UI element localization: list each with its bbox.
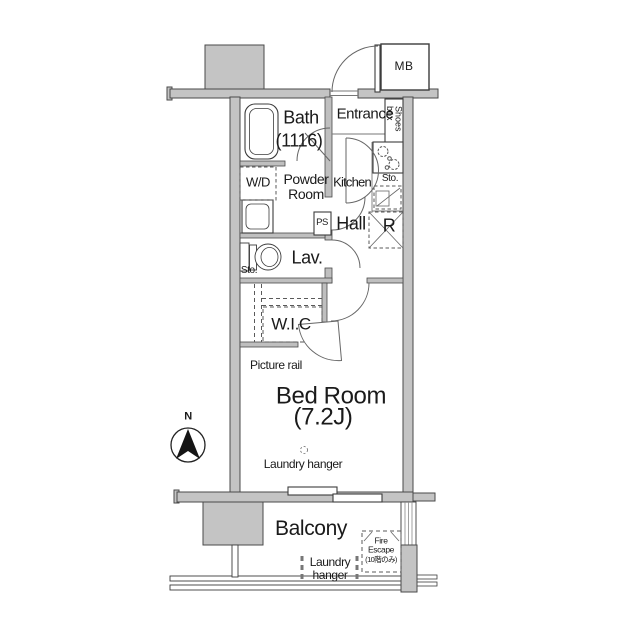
floor-plan: MB Bath (1116) Entrance Shoes box W/D Po… — [0, 0, 640, 640]
lavatory-storage-label: Sto. — [241, 266, 257, 276]
front-door-leaf — [375, 45, 380, 92]
lavatory-door-arc — [332, 240, 360, 268]
compass-north-label: N — [184, 411, 192, 422]
powder-room-label: Powder Room — [273, 172, 339, 202]
shoes-box-label: Shoes box — [386, 106, 403, 140]
balcony-divider — [232, 545, 238, 577]
wall-powder-lav — [240, 233, 325, 238]
railing-stub — [417, 575, 437, 579]
fire-escape-label-line2: Escape — [368, 546, 394, 555]
balcony-railing-outer — [170, 576, 403, 581]
bath-label: Bath — [283, 109, 318, 128]
bathtub-inner — [250, 109, 274, 155]
bedroom-door-arc — [331, 283, 369, 321]
wall-right — [403, 97, 413, 495]
meter-box-label: MB — [395, 60, 414, 72]
wall-wic-bottom — [240, 342, 298, 347]
picture-rail-label: Picture rail — [250, 359, 302, 371]
wall-top-bar-left — [170, 89, 330, 98]
floor-plan-drawing — [0, 0, 640, 640]
wall-bath-powder — [240, 161, 285, 166]
refrigerator-label: R — [383, 217, 396, 236]
washer-dryer-label: W/D — [246, 175, 270, 188]
window-panel-right — [333, 494, 382, 502]
window-panel-left — [288, 487, 337, 495]
balcony-right-column — [401, 545, 417, 592]
hall-label: Hall — [336, 215, 365, 234]
kitchen-storage-label: Sto. — [382, 174, 398, 184]
north-arrow-icon — [176, 429, 200, 459]
wall-top-left-column — [205, 45, 264, 91]
toilet-bowl-inner — [261, 248, 278, 267]
wall-hall-bedroom — [367, 278, 403, 283]
fire-escape-label-line3: (10階のみ) — [365, 556, 397, 564]
balcony-laundry-hanger-label: Laundry hanger — [295, 556, 365, 582]
kitchen-label: Kitchen — [333, 175, 371, 188]
fire-escape-hatch-mark — [364, 532, 372, 541]
lavatory-label: Lav. — [291, 249, 322, 268]
wall-lav-wic — [240, 278, 332, 283]
pipe-space-label: PS — [316, 218, 328, 228]
fire-escape-hatch-mark — [391, 532, 399, 541]
compass — [171, 428, 205, 462]
wall-wic-side — [322, 283, 327, 322]
bedroom-size-label: (7.2J) — [294, 406, 353, 431]
balcony-railing-inner — [170, 585, 403, 590]
bedroom-laundry-hanger-label: Laundry hanger — [264, 458, 342, 470]
wall-balcony-top-stub — [413, 493, 435, 501]
washbasin-inner — [246, 204, 269, 229]
bath-size-label: (1116) — [276, 132, 323, 151]
wic-label: W.I.C — [271, 315, 311, 333]
railing-stub — [417, 582, 437, 586]
wall-left — [230, 97, 240, 495]
front-door-arc — [332, 46, 378, 92]
balcony-label: Balcony — [275, 518, 347, 540]
laundry-hanger-icon — [301, 447, 308, 454]
balcony-left-column — [203, 502, 263, 545]
